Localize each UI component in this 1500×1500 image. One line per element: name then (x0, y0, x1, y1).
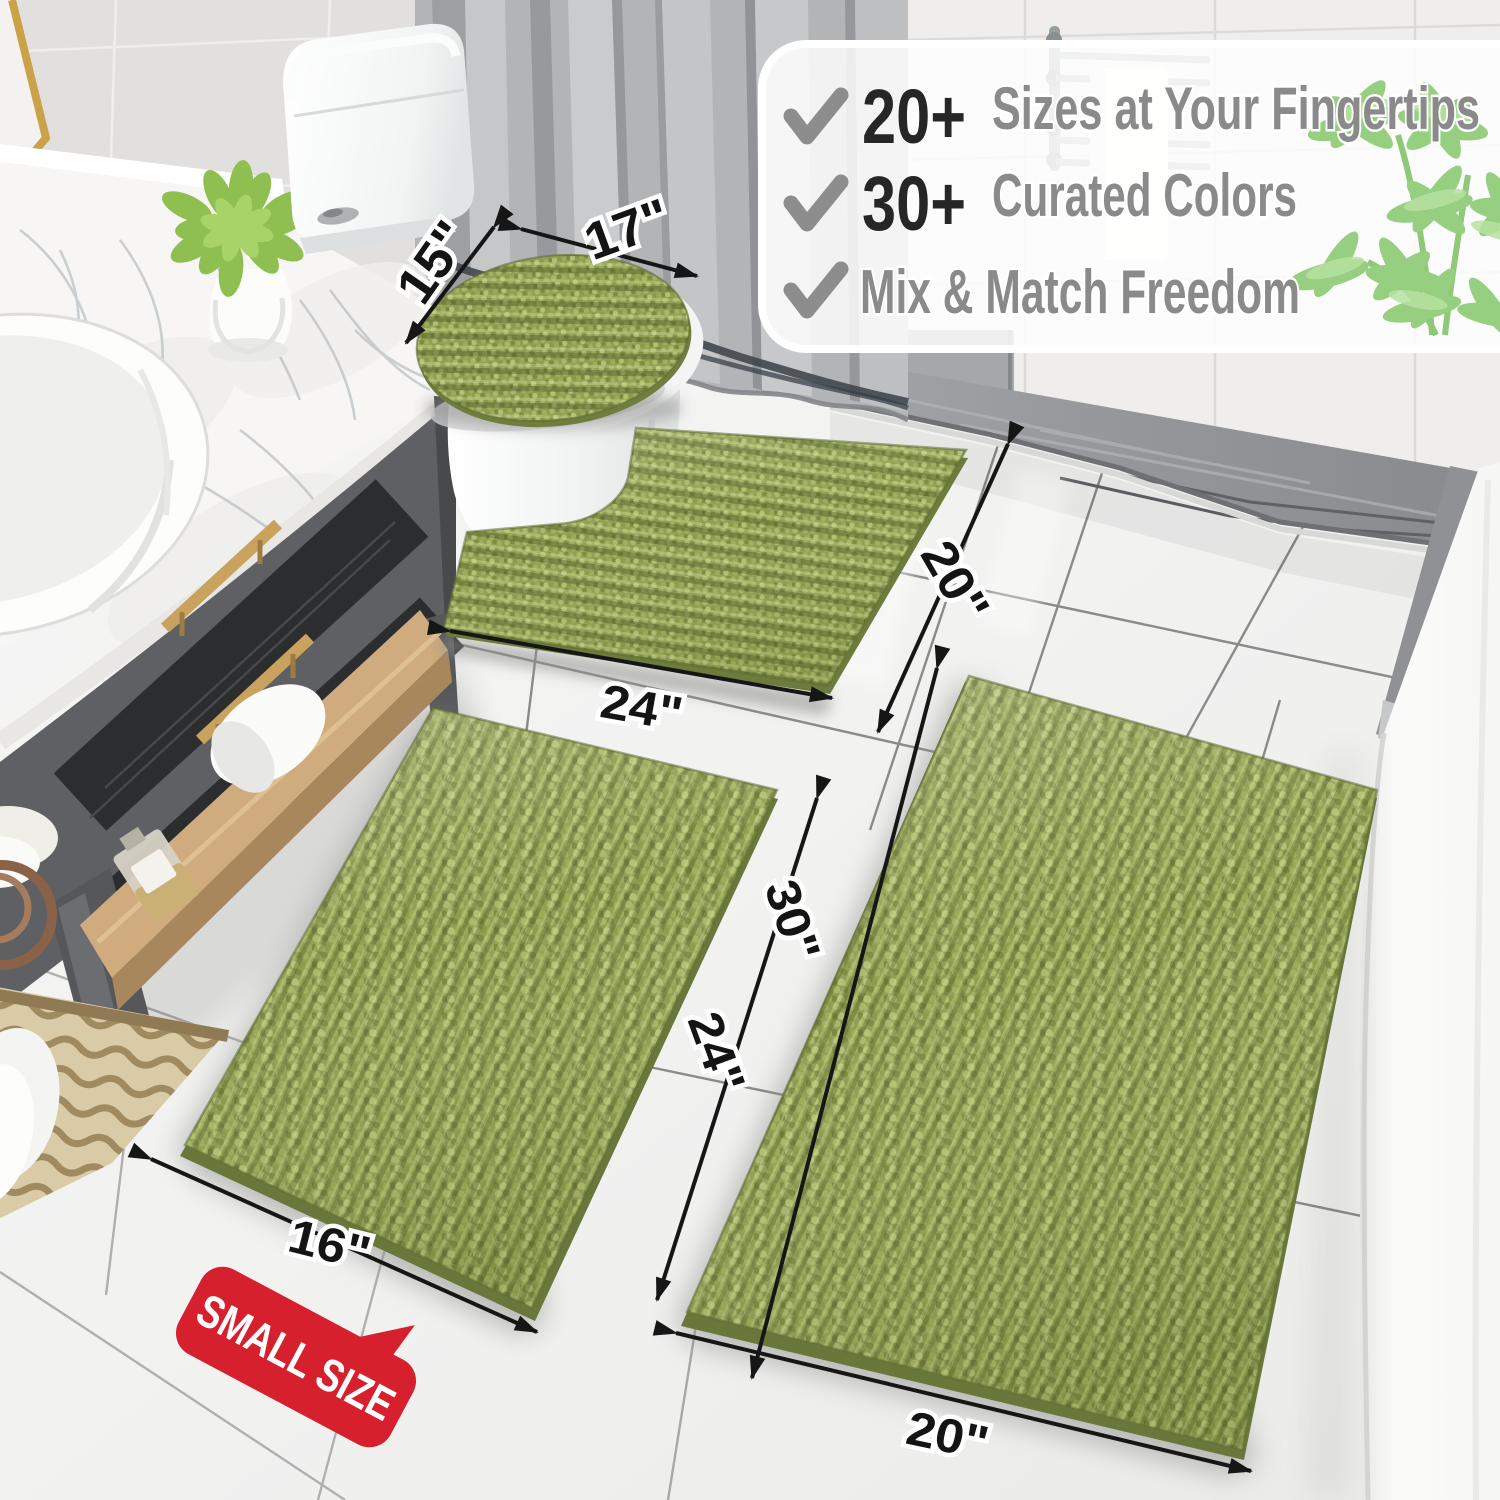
svg-text:30+: 30+ (862, 161, 966, 247)
svg-text:Mix & Match Freedom: Mix & Match Freedom (860, 258, 1300, 327)
svg-text:Sizes at Your Fingertips: Sizes at Your Fingertips (992, 75, 1480, 142)
svg-text:20+: 20+ (862, 74, 966, 160)
svg-text:Curated Colors: Curated Colors (992, 162, 1297, 229)
